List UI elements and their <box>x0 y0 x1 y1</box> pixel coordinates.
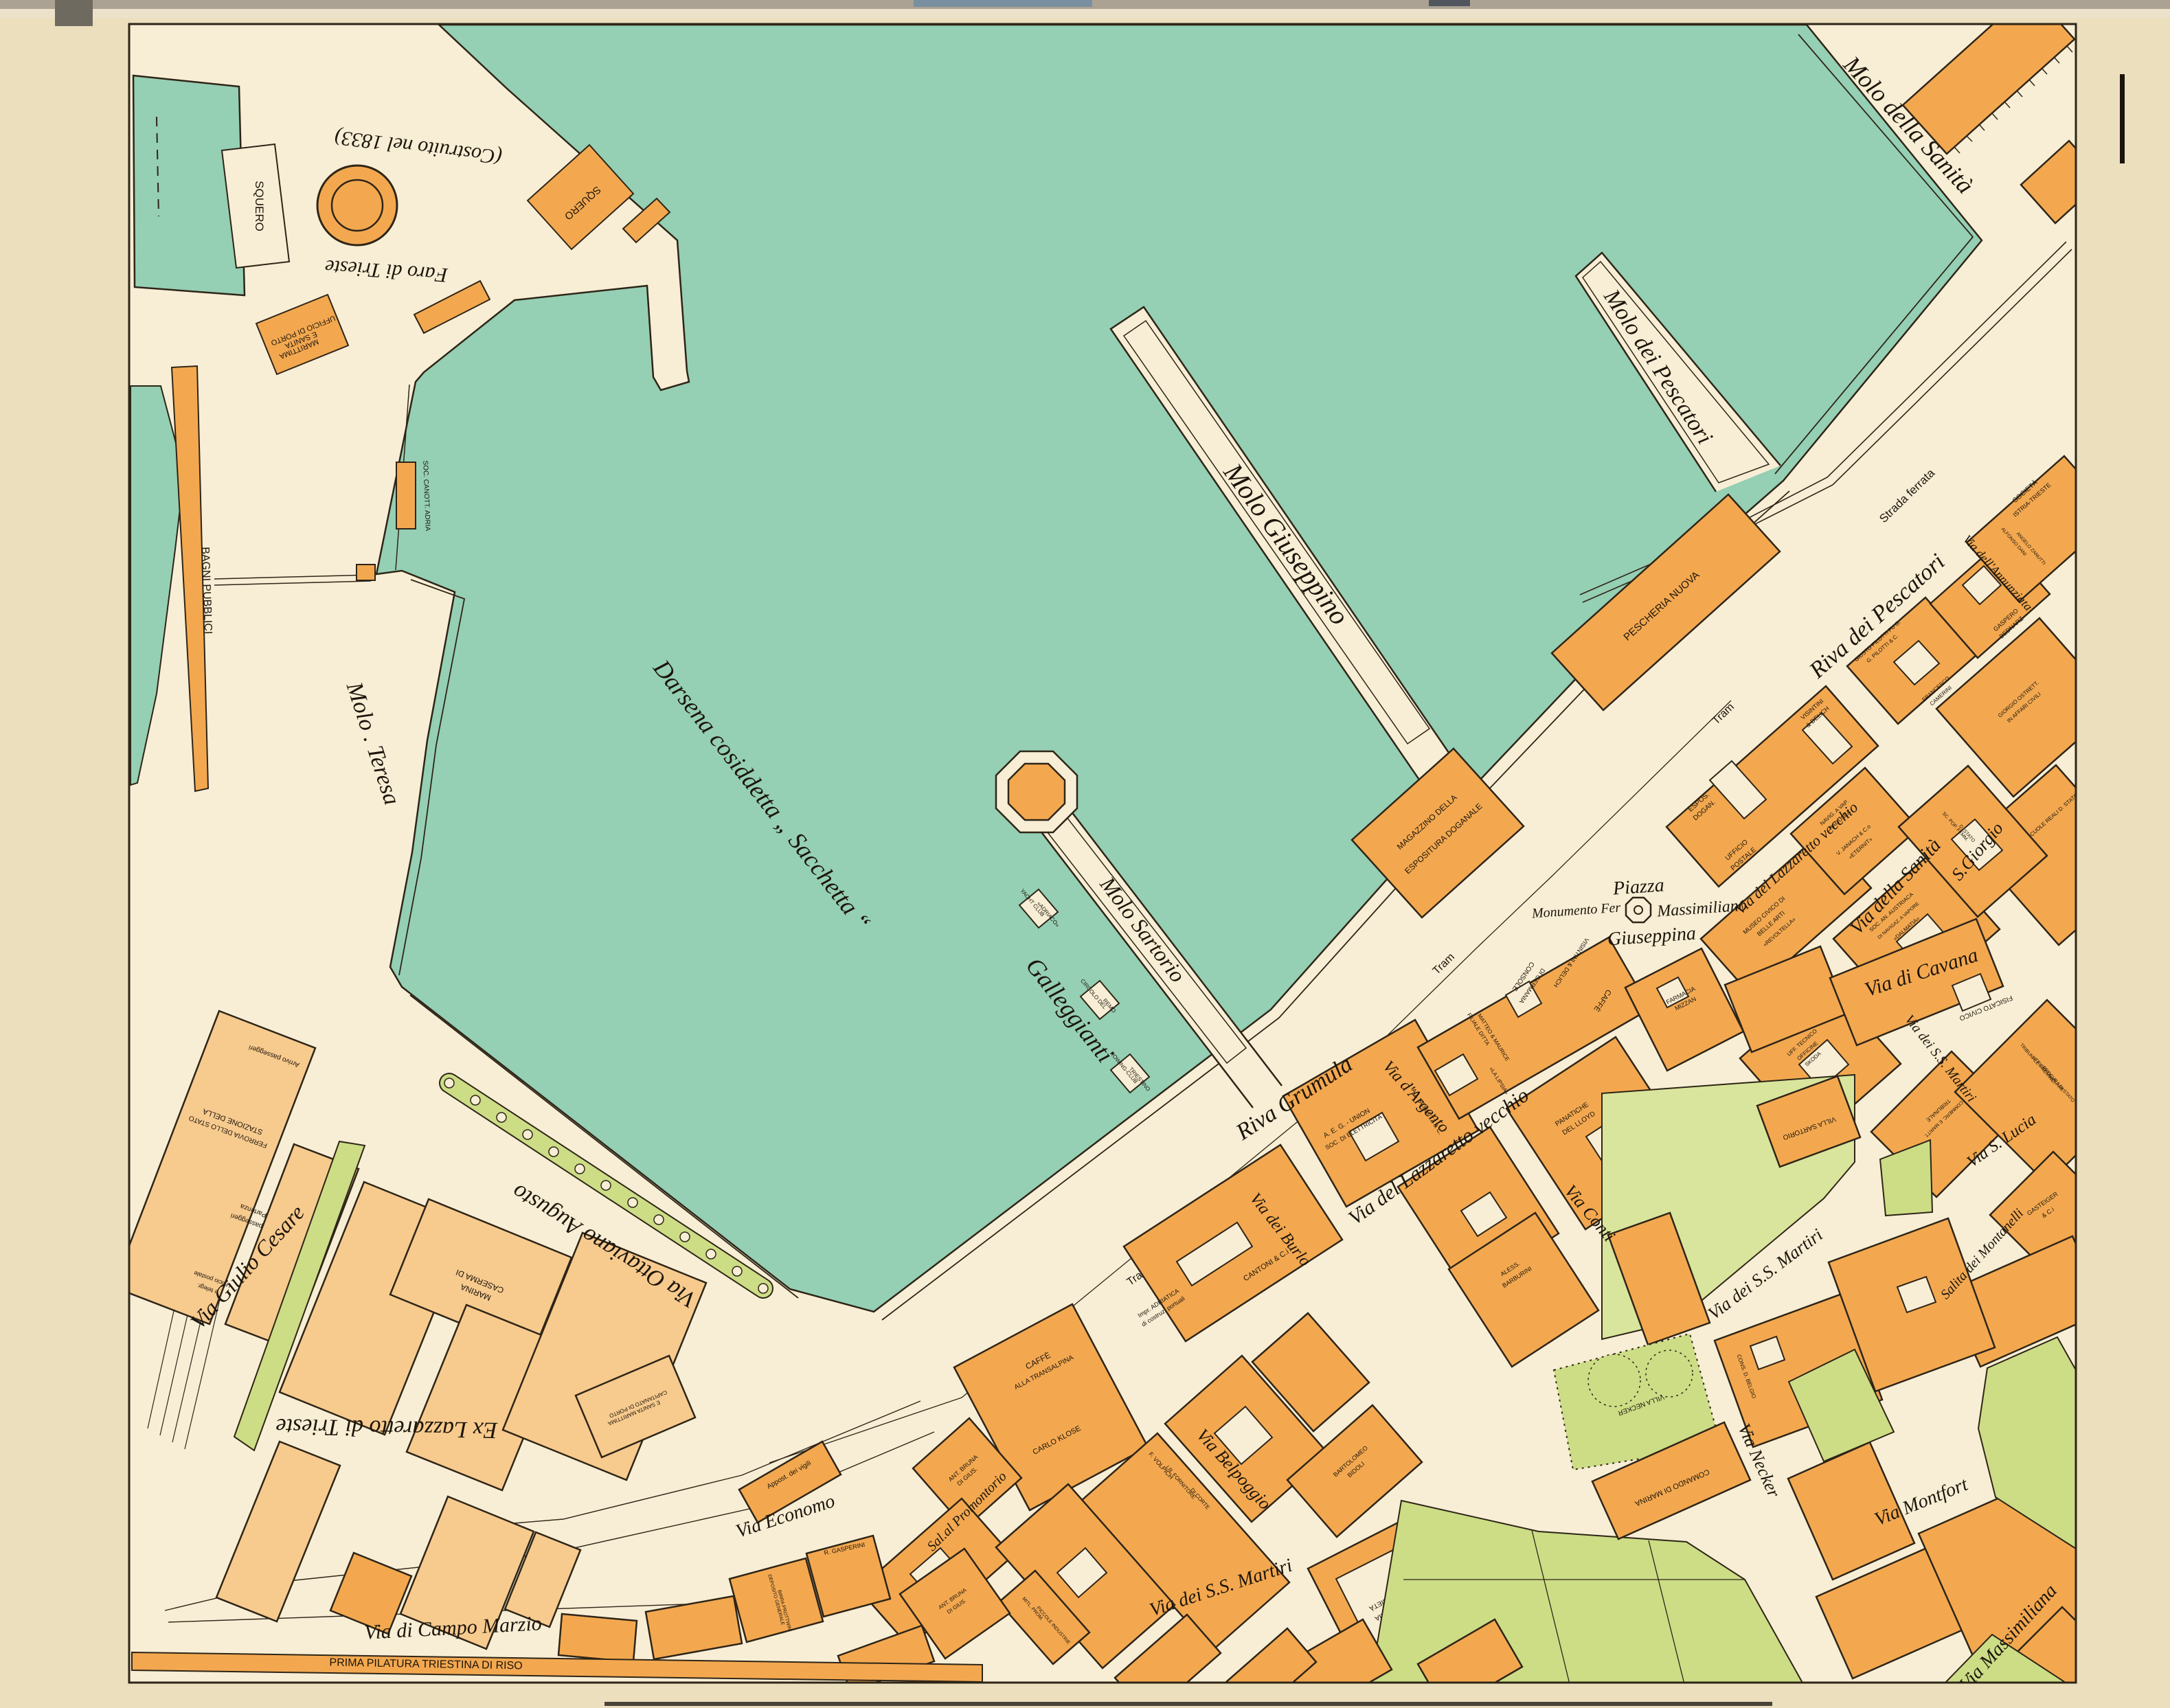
svg-text:Piazza: Piazza <box>1612 874 1665 899</box>
svg-text:SQUERO: SQUERO <box>253 181 266 231</box>
svg-text:Ex Lazzaretto di Trieste: Ex Lazzaretto di Trieste <box>275 1413 498 1443</box>
